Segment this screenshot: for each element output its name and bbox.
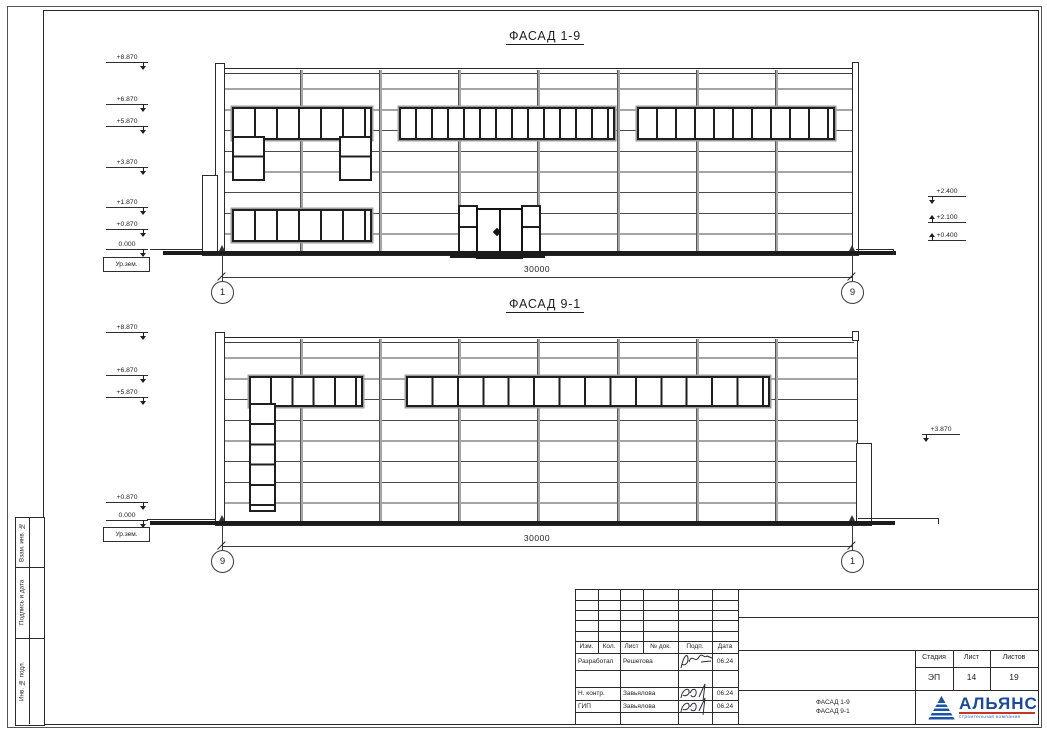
elevation-flag-icon	[932, 234, 933, 241]
window-strip	[399, 107, 615, 140]
col-ndok: № док.	[643, 643, 678, 651]
elevation-mark: +3.870	[106, 159, 148, 168]
elevation-flag-icon	[926, 434, 927, 441]
elevation-mark: +0.870	[106, 221, 148, 230]
grid-line	[575, 610, 738, 611]
mullion	[775, 70, 778, 252]
extension-line	[222, 525, 223, 551]
elevation-flag-icon	[932, 216, 933, 223]
stamp-box-1-label: Взам. инв. №	[16, 518, 28, 566]
leader-arrow-icon	[849, 245, 855, 251]
axis-bubble-right: 9	[841, 281, 864, 304]
left-pilaster	[215, 332, 225, 526]
elevation-mark: +0.870	[106, 494, 148, 503]
ramp-step	[938, 518, 939, 524]
col-list: Лист	[620, 643, 643, 651]
left-annex	[202, 175, 218, 256]
sheet-value: 14	[953, 672, 990, 682]
ground-level-label: Ур.зем.	[103, 257, 150, 272]
axis-bubble-left: 1	[211, 281, 234, 304]
mullion	[300, 339, 303, 522]
row-name: Завьялова	[623, 690, 677, 698]
elevation-flag-icon	[143, 167, 144, 174]
ramp-line	[147, 519, 215, 520]
elevation-mark: 0.000	[106, 241, 148, 250]
elevation-mark: +2.400	[928, 188, 966, 197]
ground-line	[163, 251, 896, 255]
elevation-mark: +8.870	[106, 324, 148, 333]
ramp-line	[858, 518, 938, 519]
window-leg	[339, 136, 372, 181]
elevation-flag-icon	[143, 249, 144, 256]
elevation-flag-icon	[143, 126, 144, 133]
elevation-mark: 0.000	[106, 512, 148, 521]
drawing-sheet: Взам. инв. № Подпись и дата Инв. № подл.…	[0, 0, 1047, 733]
elevation-flag-icon	[143, 520, 144, 527]
elevation-flag-icon	[143, 207, 144, 214]
leader-arrow-icon	[219, 245, 225, 251]
row-role: Н. контр.	[578, 690, 620, 698]
elevation-mark: +6.870	[106, 96, 148, 105]
row-role: Разработал	[578, 658, 620, 666]
elevation-flag-icon	[143, 397, 144, 404]
grid-line	[575, 631, 738, 632]
stamp-box-2-label: Подпись и дата	[16, 568, 28, 637]
grid-line	[575, 641, 738, 642]
ramp-line	[856, 249, 893, 250]
door-threshold	[450, 255, 545, 258]
titleblock-border	[575, 589, 1038, 590]
row-name: Решетова	[623, 658, 677, 666]
grid-line	[915, 650, 916, 724]
elevation-flag-icon	[143, 502, 144, 509]
mullion	[537, 339, 540, 522]
sheets-value: 19	[990, 672, 1038, 682]
grid-line	[620, 589, 621, 724]
stamp-box-2-divider	[29, 567, 30, 638]
elevation-mark: +5.870	[106, 118, 148, 127]
right-pilaster	[852, 62, 859, 256]
stamp-box-1-divider	[29, 517, 30, 567]
company-tagline: строительная компания	[959, 715, 1021, 720]
elevation-mark: +0.400	[928, 232, 966, 241]
door-sidelight	[458, 205, 478, 253]
mullion	[696, 70, 699, 252]
elevation-mark: +6.870	[106, 367, 148, 376]
facade-1-9-title: ФАСАД 1-9	[420, 29, 670, 43]
ramp-step	[893, 249, 894, 255]
stage-value: ЭП	[915, 672, 953, 682]
grid-line	[575, 653, 738, 654]
grid-line	[575, 600, 738, 601]
grid-line	[575, 670, 738, 671]
grid-line	[738, 690, 1038, 691]
right-annex	[856, 443, 872, 526]
dimension-line	[222, 546, 853, 547]
axis-bubble-right: 1	[841, 550, 864, 573]
col-kol: Кол.	[598, 643, 620, 651]
ground-level-label: Ур.зем.	[103, 527, 150, 542]
row-name: Завьялова	[623, 703, 677, 711]
grid-line	[738, 650, 1038, 651]
doc-title-line2: ФАСАД 9-1	[816, 708, 850, 715]
elevation-mark: +3.870	[922, 426, 960, 435]
doc-title-line1: ФАСАД 1-9	[816, 699, 850, 706]
leader-arrow-icon	[849, 515, 855, 521]
mullion	[617, 70, 620, 252]
elevation-mark: +2.100	[928, 214, 966, 223]
ground-line	[150, 521, 895, 525]
sheet-header: Лист	[953, 654, 990, 661]
elevation-flag-icon	[143, 62, 144, 69]
grid-line	[575, 700, 738, 701]
dimension-label: 30000	[487, 533, 587, 543]
extension-line	[852, 525, 853, 551]
leader-arrow-icon	[219, 515, 225, 521]
stamp-box-3-divider	[29, 638, 30, 724]
dimension-label: 30000	[487, 264, 587, 274]
signature	[679, 697, 713, 717]
facade-9-1-title: ФАСАД 9-1	[420, 297, 670, 311]
dimension-line	[222, 277, 853, 278]
mullion	[775, 339, 778, 522]
elevation-mark: +5.870	[106, 389, 148, 398]
signature	[679, 650, 713, 672]
grid-line	[575, 620, 738, 621]
grid-line	[738, 617, 1038, 618]
sheets-header: Листов	[990, 654, 1038, 661]
row-date: 06.24	[712, 690, 738, 698]
doc-title: ФАСАД 1-9 ФАСАД 9-1	[816, 698, 896, 716]
elevation-mark: +1.870	[106, 199, 148, 208]
mullion	[458, 339, 461, 522]
elevation-mark: +8.870	[106, 54, 148, 63]
elevation-flag-icon	[932, 196, 933, 203]
facade-9-1-building	[222, 337, 858, 526]
elevation-flag-icon	[143, 332, 144, 339]
window-strip	[232, 209, 372, 242]
elevation-flag-icon	[143, 375, 144, 382]
stage-header: Стадия	[915, 654, 953, 661]
col-izm: Изм.	[575, 643, 598, 651]
grid-line	[575, 687, 738, 688]
col-data: Дата	[712, 643, 738, 651]
ramp-line	[150, 249, 202, 250]
row-date: 06.24	[712, 703, 738, 711]
window-leg	[249, 403, 276, 512]
grid-line	[915, 667, 1038, 668]
door-sidelight	[521, 205, 541, 253]
mullion	[617, 339, 620, 522]
mullion	[696, 339, 699, 522]
row-date: 06.24	[712, 658, 738, 666]
stamp-box-3-label: Инв. № подл.	[16, 639, 28, 723]
elevation-flag-icon	[143, 104, 144, 111]
window-leg	[232, 136, 265, 181]
row-role: ГИП	[578, 703, 620, 711]
mullion	[379, 70, 382, 252]
right-parapet-cap	[852, 331, 859, 341]
window-strip	[637, 107, 835, 140]
mullion	[379, 339, 382, 522]
window-strip	[406, 376, 770, 407]
brand-underline	[959, 712, 1035, 714]
elevation-flag-icon	[143, 229, 144, 236]
grid-line	[575, 712, 738, 713]
axis-bubble-left: 9	[211, 550, 234, 573]
company-name: АЛЬЯНС	[959, 694, 1038, 714]
grid-line	[738, 589, 739, 724]
